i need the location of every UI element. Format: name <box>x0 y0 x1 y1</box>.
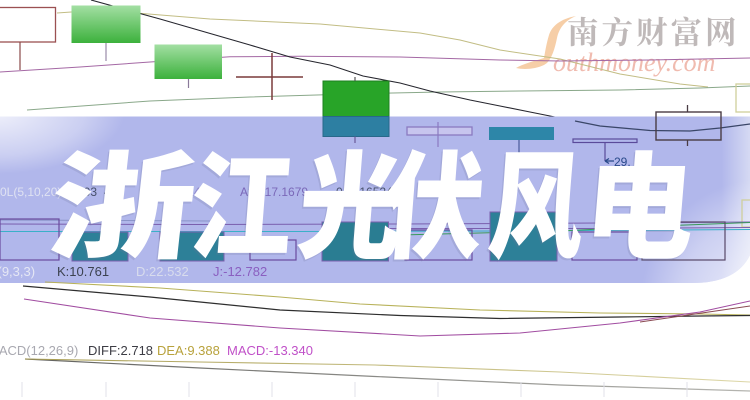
svg-text:DEA:9.388: DEA:9.388 <box>157 343 220 358</box>
svg-text:K:10.761: K:10.761 <box>57 264 109 279</box>
svg-text:D:22.532: D:22.532 <box>136 264 189 279</box>
svg-text:DIFF:2.718: DIFF:2.718 <box>88 343 153 358</box>
svg-text:MACD:-13.340: MACD:-13.340 <box>227 343 313 358</box>
svg-text:MACD(12,26,9): MACD(12,26,9) <box>0 343 78 358</box>
svg-text:outhmoney.com: outhmoney.com <box>553 48 715 77</box>
svg-text:J(9,3,3): J(9,3,3) <box>0 264 35 279</box>
svg-text:J:-12.782: J:-12.782 <box>213 264 267 279</box>
svg-text:0L(5,10,20): 0L(5,10,20) <box>0 185 61 199</box>
